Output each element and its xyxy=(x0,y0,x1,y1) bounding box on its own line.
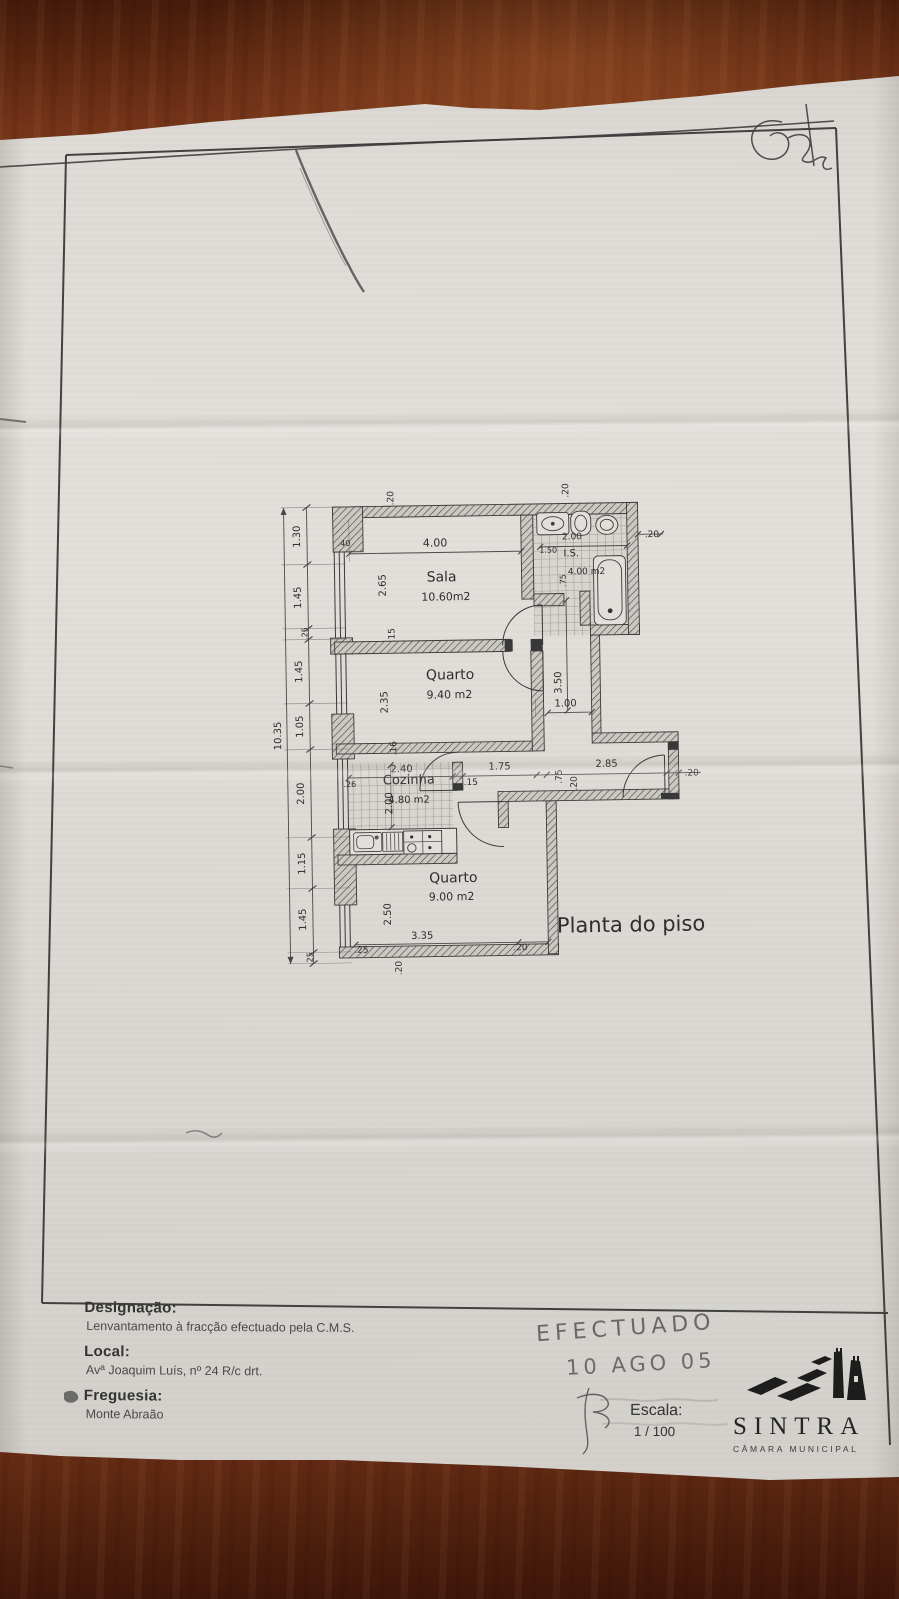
floor-plan: .20.404.002.65Sala10.60m2.15Quarto9.40 m… xyxy=(269,481,706,977)
signature-bottom-icon xyxy=(577,1388,609,1454)
plan-label-46: .25 xyxy=(305,952,314,965)
plan-label-16: .20 xyxy=(645,530,660,540)
plan-label-34: 3.35 xyxy=(411,931,433,942)
plan-label-38: 1.30 xyxy=(292,525,303,547)
local-value: Avª Joaquim Luís, nº 24 R/c drt. xyxy=(86,1363,354,1379)
designacao-value: Lenvantamento à fracção efectuado pela C… xyxy=(86,1319,354,1335)
local-label: Local: xyxy=(84,1343,354,1362)
kitchen-fixtures xyxy=(350,828,457,855)
plan-label-17: .75 xyxy=(559,574,568,587)
plan-label-39: 1.45 xyxy=(293,586,304,608)
plan-label-45: 1.45 xyxy=(298,908,309,930)
plan-label-2: 4.00 xyxy=(423,536,448,549)
plan-label-22: Cozinha xyxy=(383,773,435,789)
plan-label-19: 1.00 xyxy=(554,698,576,709)
dim-mark xyxy=(288,963,352,964)
plan-label-24: 4.80 m2 xyxy=(388,795,430,807)
plan-label-35: .25 xyxy=(354,946,368,956)
plan-label-13: 1.50 xyxy=(539,546,557,555)
crease-mark-icon xyxy=(296,150,364,292)
plan-label-5: 10.60m2 xyxy=(421,590,470,604)
plan-label-15: 4.00 m2 xyxy=(568,567,606,578)
plan-label-18: 3.50 xyxy=(553,671,564,693)
plan-label-47: 10.35 xyxy=(273,722,284,751)
plan-label-6: .15 xyxy=(387,628,397,642)
sintra-logo-block: SINTRA CÂMARA MUNICIPAL xyxy=(733,1348,898,1454)
plan-label-41: 1.45 xyxy=(294,660,305,682)
walls xyxy=(328,502,681,958)
plan-label-32: 9.00 m2 xyxy=(429,890,475,904)
sintra-name: SINTRA xyxy=(733,1413,898,1441)
plan-label-25: 1.75 xyxy=(488,761,510,772)
scale-block: Escala: 1 / 100 xyxy=(630,1402,683,1439)
dim-mark xyxy=(281,564,345,565)
plan-label-30: .20 xyxy=(684,768,699,778)
plan-label-44: 1.15 xyxy=(297,852,308,874)
plan-label-4: Sala xyxy=(427,569,457,585)
plan-label-48: Planta do piso xyxy=(557,911,706,937)
door-jambs xyxy=(451,637,680,803)
plan-label-37: .20 xyxy=(395,961,405,976)
plan-label-21: .26 xyxy=(343,780,356,789)
plan-label-14: I.S. xyxy=(563,548,579,559)
designacao-label: Designação: xyxy=(84,1299,354,1318)
pen-line-top xyxy=(0,121,834,167)
plan-label-12: 2.00 xyxy=(562,532,582,542)
plan-label-36: .20 xyxy=(513,943,528,953)
plan-label-7: Quarto xyxy=(426,667,475,684)
freguesia-label: Freguesia: xyxy=(84,1387,354,1406)
escala-value: 1 / 100 xyxy=(634,1424,683,1439)
plan-label-29: .20 xyxy=(570,776,580,791)
sintra-org: CÂMARA MUNICIPAL xyxy=(733,1444,898,1454)
plan-label-28: 2.85 xyxy=(595,759,617,770)
plan-label-40: .25 xyxy=(300,627,309,640)
plan-label-26: .15 xyxy=(464,778,478,788)
sintra-castle-icon xyxy=(733,1348,883,1404)
plan-label-33: 2.50 xyxy=(383,903,394,925)
plan-label-11: .20 xyxy=(561,483,571,498)
escala-label: Escala: xyxy=(630,1402,683,1420)
signature-top-right-icon xyxy=(752,104,832,169)
plan-label-1: .40 xyxy=(338,539,351,548)
plan-label-43: 2.00 xyxy=(296,782,307,804)
plan-label-31: Quarto xyxy=(429,870,478,887)
plan-label-10: .16 xyxy=(389,741,399,756)
plan-label-8: 9.40 m2 xyxy=(426,688,472,702)
title-block: Designação: Lenvantamento à fracção efec… xyxy=(83,1299,354,1433)
plan-label-27: .75 xyxy=(555,769,565,783)
dim-mark xyxy=(282,628,346,629)
plan-label-9: 2.35 xyxy=(379,691,390,713)
plan-label-3: 2.65 xyxy=(378,574,389,596)
plan-label-0: .20 xyxy=(386,491,396,506)
freguesia-value: Monte Abraão xyxy=(86,1407,354,1423)
photo-of-floor-plan-sheet: .20.404.002.65Sala10.60m2.15Quarto9.40 m… xyxy=(0,0,899,1599)
plan-label-42: 1.05 xyxy=(295,715,306,737)
dim-mark xyxy=(284,703,348,704)
